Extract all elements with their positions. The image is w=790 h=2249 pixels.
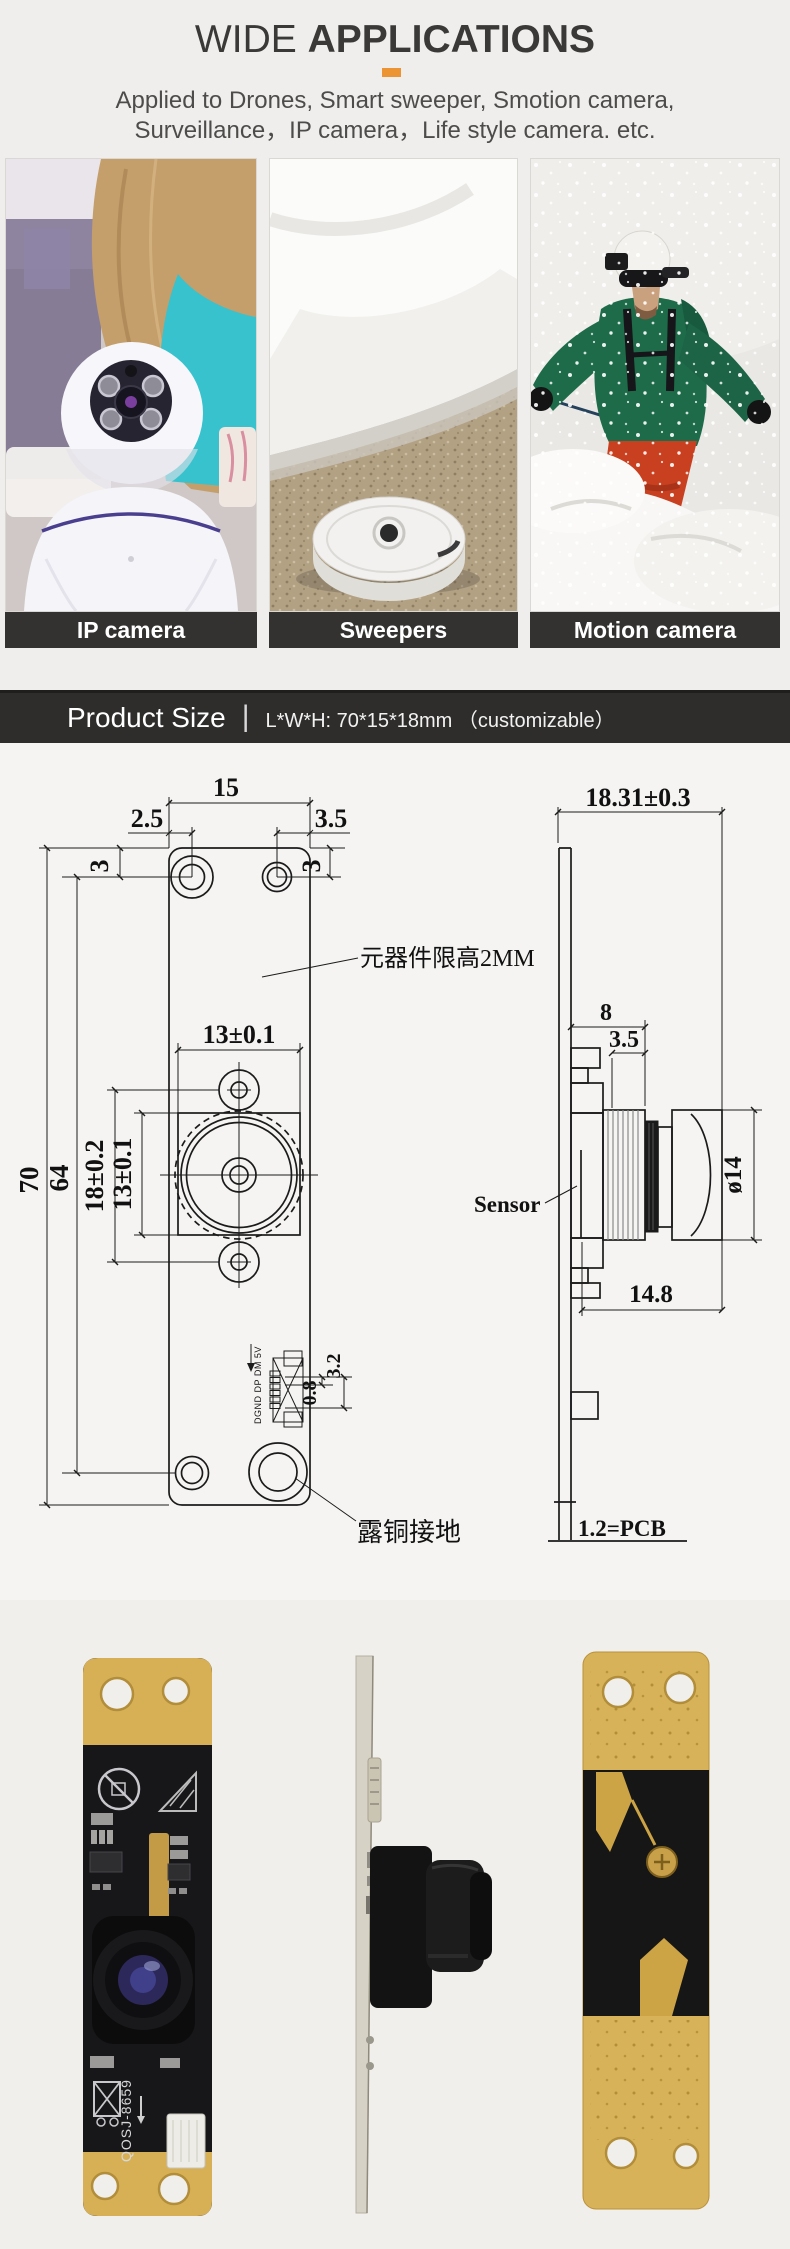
application-card-ip-camera: IP camera xyxy=(5,158,257,648)
label-sensor: Sensor xyxy=(474,1192,540,1217)
side-lens xyxy=(370,1846,492,2008)
subtitle-line1: Applied to Drones, Smart sweeper, Smotio… xyxy=(0,86,790,116)
dimension-drawing: 15 2.5 3.5 3 3 7 xyxy=(0,743,790,1600)
ip-camera-photo xyxy=(5,158,257,612)
separator: | xyxy=(242,700,250,734)
sweeper-illustration xyxy=(270,159,517,611)
dim-board-width: 15 xyxy=(213,773,239,802)
subtitle-line2: Surveillance，IP camera，Life style camera… xyxy=(0,116,790,146)
dim-pad-pitch: 0.8 xyxy=(299,1381,321,1406)
caption-motion-camera: Motion camera xyxy=(530,612,780,648)
front-silkscreen-text: QOSJ-8659 xyxy=(118,2079,134,2162)
connector-pin-labels: DGND DP DM 5V xyxy=(253,1346,263,1424)
dim-board-height: 70 xyxy=(14,1167,44,1194)
dim-hole-span: 64 xyxy=(44,1165,74,1192)
application-card-sweepers: Sweepers xyxy=(269,158,518,648)
product-page: WIDE APPLICATIONS Applied to Drones, Sma… xyxy=(0,0,790,2249)
front-view-drawing: 15 2.5 3.5 3 3 7 xyxy=(14,773,535,1547)
dim-hole-top-right: 3 xyxy=(297,860,326,873)
note-component-height-limit: 元器件限高2MM xyxy=(360,945,535,972)
dim-pad-span: 3.2 xyxy=(323,1354,345,1379)
module-photos: QOSJ-8659 xyxy=(0,1600,790,2249)
application-card-motion-camera: Motion camera xyxy=(530,158,780,648)
dim-lens-diameter: ø14 xyxy=(720,1156,747,1194)
module-photos-section: QOSJ-8659 xyxy=(0,1600,790,2249)
dim-lens-height: 13±0.1 xyxy=(108,1138,137,1211)
caption-sweepers: Sweepers xyxy=(269,612,518,648)
title-bold: APPLICATIONS xyxy=(308,18,595,61)
section-title: Product Size xyxy=(67,702,226,734)
ip-camera-illustration xyxy=(6,159,256,611)
dim-total-height: 18.31±0.3 xyxy=(585,783,690,812)
label-pcb-thickness: 1.2=PCB xyxy=(578,1516,666,1541)
lens-side xyxy=(571,1048,722,1419)
drawing-section: 15 2.5 3.5 3 3 7 xyxy=(0,743,790,1600)
dim-hole-top-left: 3 xyxy=(85,860,114,873)
subtitle: Applied to Drones, Smart sweeper, Smotio… xyxy=(0,86,790,146)
back-screw xyxy=(647,1847,677,1877)
pcb-front-photo: QOSJ-8659 xyxy=(83,1658,212,2216)
dim-hole-right-offset: 3.5 xyxy=(315,804,348,833)
page-title: WIDE APPLICATIONS xyxy=(0,18,790,62)
dim-lens-length: 14.8 xyxy=(629,1281,673,1308)
dim-hole-left-offset: 2.5 xyxy=(131,804,164,833)
size-spec: L*W*H: 70*15*18mm （customizable） xyxy=(266,704,615,733)
motion-camera-photo xyxy=(530,158,780,612)
dim-holder-depth: 8 xyxy=(600,1000,612,1026)
product-size-bar: Product Size | L*W*H: 70*15*18mm （custom… xyxy=(0,690,790,743)
sweepers-photo xyxy=(269,158,518,612)
pcb-side-photo xyxy=(356,1656,492,2213)
dim-lens-width: 13±0.1 xyxy=(203,1020,276,1049)
side-view-drawing: 18.31±0.3 1.2=PCB xyxy=(474,783,762,1541)
front-lens xyxy=(92,1916,195,2044)
pcb-back-photo xyxy=(583,1652,709,2209)
dim-sensor-offset: 3.5 xyxy=(609,1027,639,1053)
caption-ip-camera: IP camera xyxy=(5,612,257,648)
note-exposed-copper-ground: 露铜接地 xyxy=(357,1518,461,1547)
skier-illustration xyxy=(531,159,779,611)
accent-dash xyxy=(382,68,401,77)
dim-hole-pitch: 18±0.2 xyxy=(80,1140,109,1213)
title-light: WIDE xyxy=(195,18,297,61)
lens-front xyxy=(160,1062,318,1288)
